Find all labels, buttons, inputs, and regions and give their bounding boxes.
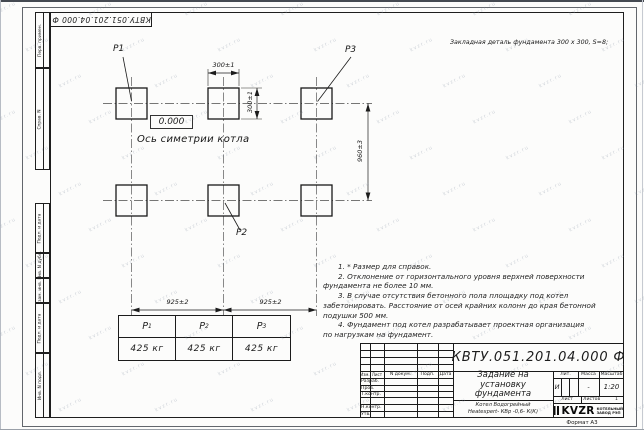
tb-product-name: Котел Водогрейный Heatexpert- КВр -0,6- … (454, 400, 552, 417)
note-line: по нагрузкам на фундамент. (323, 330, 623, 340)
tb-row-nkontr: Н.контр. (361, 404, 382, 411)
foundation-pads (116, 88, 332, 216)
note-line: 2. Отклонение от горизонтального уровня … (323, 272, 623, 282)
note-line: 4. Фундамент под котел разрабатывает про… (323, 320, 623, 330)
dim-label-side-height: 300±1 (246, 88, 254, 116)
format-label: Формат А3 (540, 419, 624, 427)
note-line: подушки 500 мм. (323, 311, 623, 321)
tb-col-podp: Подп. (417, 371, 438, 378)
load-table-header: P3 (233, 316, 290, 338)
tb-lit-label: Лит. (553, 371, 578, 378)
pad-label-p3: P3 (345, 45, 356, 55)
tb-row-razrab: Разраб. (361, 378, 379, 385)
tb-doc-number: КВТУ.051.201.04.000 Ф (454, 344, 623, 370)
note-line: фундамента не более 10 мм. (323, 281, 623, 291)
dim-label-col-right: 925±2 (250, 298, 291, 306)
load-table-value: 425 кг (119, 338, 176, 360)
tb-sheets-label: Листов (583, 396, 613, 403)
load-table-header: P1 (119, 316, 176, 338)
tb-col-izm: Изм. (360, 371, 370, 378)
tb-mass-value: - (578, 378, 599, 396)
tb-col-data: Дата (438, 371, 453, 378)
tb-lit-value: И (553, 378, 561, 396)
tb-sheet-label: Лист (553, 396, 581, 403)
tb-mass-label: Масса (578, 371, 599, 378)
tb-title: Задание на установку фундамента (454, 372, 552, 399)
kvzr-logo-text: KVZR (561, 405, 594, 417)
tb-row-tkontr: Т.контр. (361, 391, 381, 397)
load-table-value: 425 кг (233, 338, 290, 360)
note-line: забетонировать. Расстояние от осей крайн… (323, 301, 623, 311)
level-mark-box: 0.000 (150, 115, 193, 129)
tb-scale-value: 1:20 (599, 378, 624, 396)
dim-label-col-left: 925±2 (157, 298, 198, 306)
tb-sheets-value: 1 (615, 396, 623, 403)
kvzr-logo-icon (554, 406, 559, 415)
company-name: КОТЕЛЬНЫЙ ЗАВОД РЭП (597, 407, 623, 415)
tb-col-list: Лист (370, 371, 384, 378)
note-line: 3. В случае отсутствия бетонного пола пл… (323, 291, 623, 301)
dim-label-row-spacing: 960±3 (356, 136, 364, 166)
tb-scale-label: Масштаб (599, 371, 624, 378)
axis-caption: Ось симетрии котла (137, 134, 249, 145)
dim-label-top-width: 300±1 (203, 61, 244, 69)
plate-note: Закладная деталь фундамента 300 x 300, S… (450, 39, 625, 46)
load-table: P1 P2 P3 425 кг 425 кг 425 кг (118, 315, 291, 361)
pad-label-p2: P2 (236, 228, 247, 238)
tb-row-utv: Утв. (361, 411, 371, 418)
notes-block: 1. * Размер для справок. 2. Отклонение о… (323, 262, 623, 340)
pad-label-p1: P1 (113, 44, 124, 54)
drawing-sheet: { "corner_stamp": { "doc_number": "КВТУ.… (0, 0, 644, 430)
note-line: 1. * Размер для справок. (323, 262, 623, 272)
level-mark: 0.000 (159, 117, 185, 127)
company-logo: KVZR КОТЕЛЬНЫЙ ЗАВОД РЭП (554, 404, 623, 417)
load-table-header: P2 (176, 316, 233, 338)
tb-col-dokum: N докум. (384, 371, 417, 378)
load-table-value: 425 кг (176, 338, 233, 360)
